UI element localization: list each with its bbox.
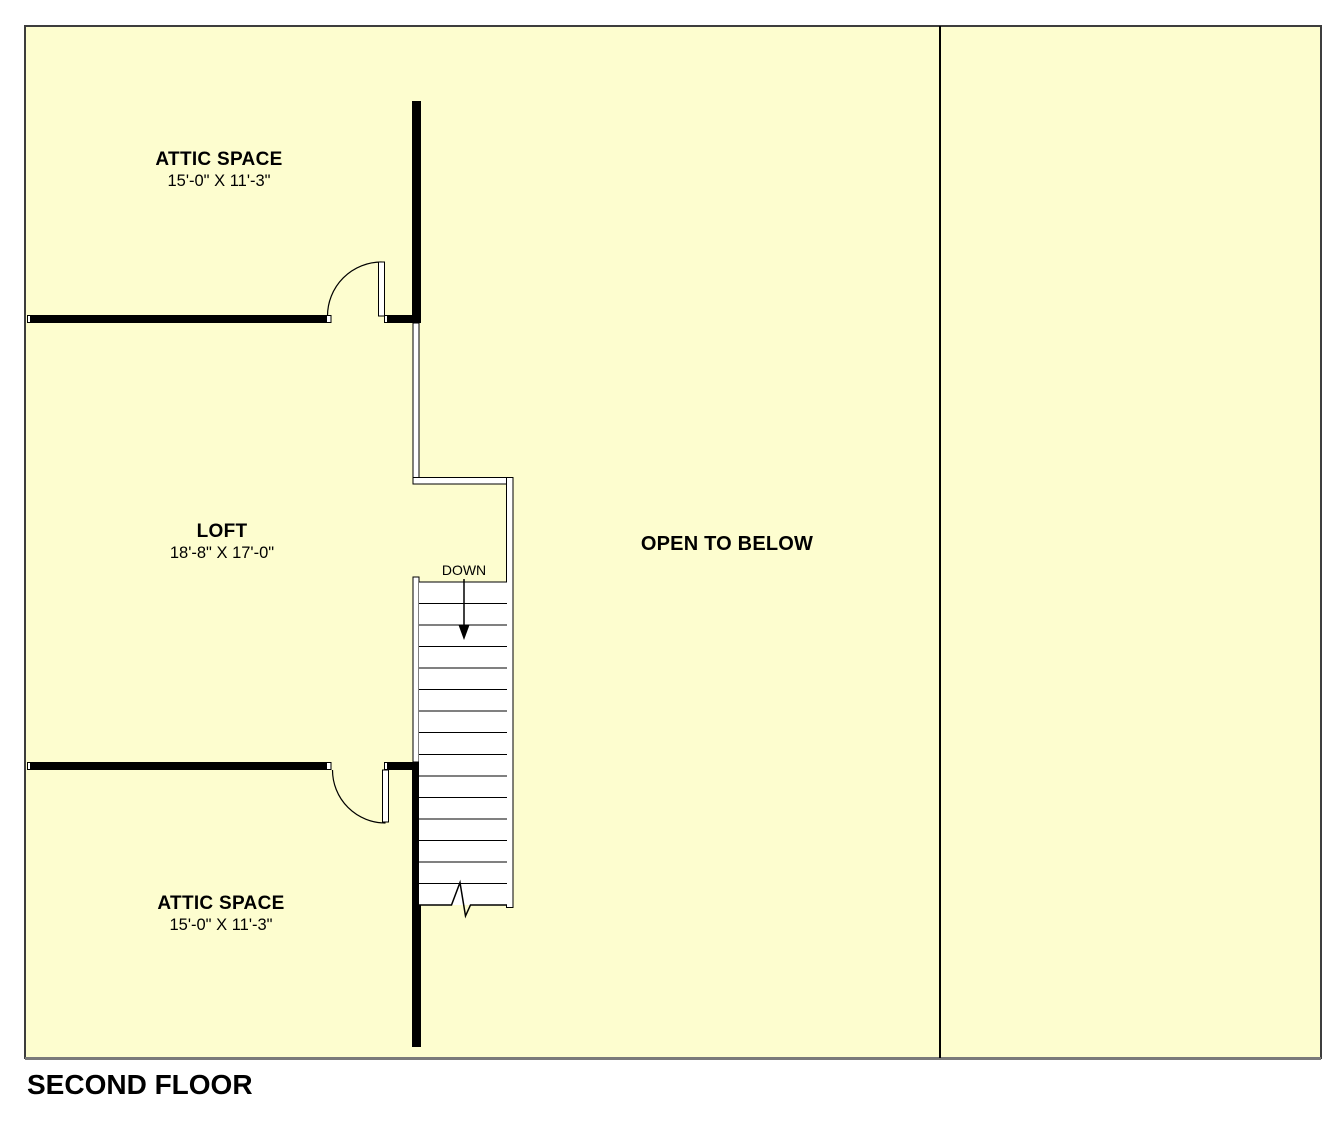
railing-jog-horizontal [413, 478, 513, 485]
wall-top-vertical [412, 101, 421, 323]
wall-bottom-right-piece [387, 762, 412, 770]
wall-cap [327, 316, 332, 323]
railing-right-vertical [507, 478, 514, 908]
stairway [419, 579, 507, 916]
room-label-attic-bottom: ATTIC SPACE 15'-0" X 11'-3" [157, 892, 284, 935]
wall-cap [327, 763, 332, 770]
room-label-open-to-below: OPEN TO BELOW [641, 533, 813, 555]
railing-stair-left [413, 577, 419, 762]
room-name-loft: LOFT [170, 520, 274, 543]
wall-cap [385, 316, 388, 323]
room-name-attic-bottom: ATTIC SPACE [157, 892, 284, 915]
wall-cap [28, 763, 31, 770]
room-dims-attic-top: 15'-0" X 11'-3" [155, 171, 282, 191]
stair-direction-label: DOWN [442, 562, 486, 578]
wall-cap [28, 316, 31, 323]
door-leaf-bottom [383, 770, 389, 822]
page-title: SECOND FLOOR [27, 1068, 253, 1102]
room-label-loft: LOFT 18'-8" X 17'-0" [170, 520, 274, 563]
wall-cap [385, 763, 388, 770]
wall-top-left-horizontal [27, 315, 327, 323]
floor-plan-page: ATTIC SPACE 15'-0" X 11'-3" LOFT 18'-8" … [0, 0, 1336, 1122]
wall-bottom-left-horizontal [27, 762, 327, 770]
wall-top-right-piece [387, 315, 412, 323]
room-name-attic-top: ATTIC SPACE [155, 148, 282, 171]
door-leaf-top [379, 262, 385, 316]
room-dims-attic-bottom: 15'-0" X 11'-3" [157, 915, 284, 935]
railing-upper-vertical [413, 323, 419, 479]
room-label-attic-top: ATTIC SPACE 15'-0" X 11'-3" [155, 148, 282, 191]
room-dims-loft: 18'-8" X 17'-0" [170, 543, 274, 563]
